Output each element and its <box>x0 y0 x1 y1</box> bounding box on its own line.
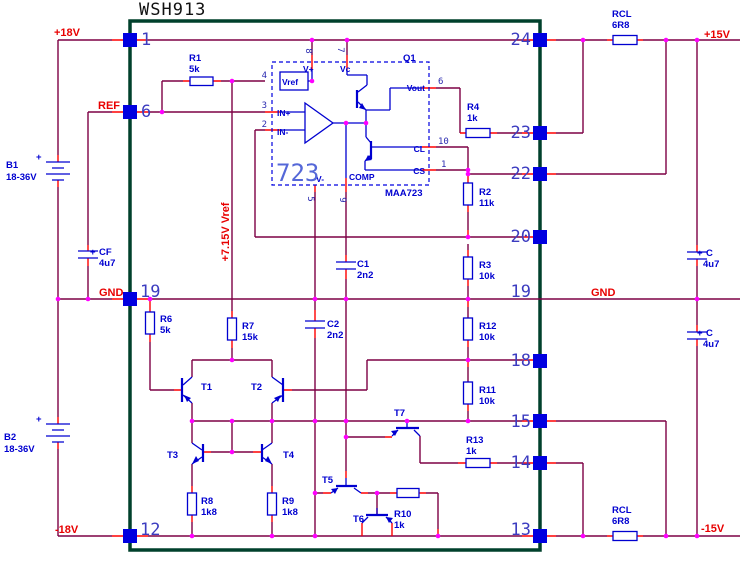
comp-label: COMP <box>349 172 375 182</box>
pin-number-15: 15 <box>511 412 531 432</box>
schematic-page: WSH913 Vref V+ Vc IN+ IN- V- COMP Vout C… <box>0 0 747 567</box>
r12-value: 10k <box>479 332 496 343</box>
rcl-top-name: RCL <box>612 9 632 20</box>
cs-label: CS <box>413 166 425 176</box>
pin-pad-15 <box>533 414 547 428</box>
resistor-r4 <box>466 129 490 138</box>
resistor-r9 <box>268 493 277 515</box>
pin-pad-22 <box>533 167 547 181</box>
inminus-label: IN- <box>277 127 289 137</box>
opamp-triangle <box>305 103 333 143</box>
r3-name: R3 <box>479 260 491 271</box>
ic-pin7: 7 <box>335 47 345 52</box>
ic-pin9: 9 <box>337 197 347 202</box>
resistor-r2 <box>464 183 473 205</box>
resistors: R1 5k R4 1k R2 11k R3 10k R12 10k R11 10… <box>146 9 638 541</box>
cl-label: CL <box>414 144 425 154</box>
pin-pad-24 <box>533 33 547 47</box>
cf-value: 4u7 <box>99 258 115 269</box>
t2-label: T2 <box>251 382 262 393</box>
c2-value: 2n2 <box>327 330 343 341</box>
r8-name: R8 <box>201 496 213 507</box>
b2-name: B2 <box>4 432 16 443</box>
pin-pad-12 <box>123 529 137 543</box>
capacitors-batteries: C1 2n2 C2 2n2 + CF 4u7 + C 4u7 + C 4u7 +… <box>4 152 719 455</box>
c-bottom-plus: + <box>697 328 703 339</box>
ic-pin5: 5 <box>305 196 315 201</box>
ic-pin8: 8 <box>303 48 313 53</box>
resistor-r7 <box>228 318 237 340</box>
cf-name: CF <box>99 247 112 258</box>
net-minus18v: -18V <box>55 524 79 536</box>
transistor-bars <box>182 378 419 515</box>
net-vref-rail: +7.15V Vref <box>220 202 232 261</box>
t3-label: T3 <box>167 450 178 461</box>
r10-name: R10 <box>394 509 411 520</box>
r11-value: 10k <box>479 396 496 407</box>
net-plus15v: +15V <box>704 29 731 41</box>
ic-pin4: 4 <box>262 71 267 81</box>
net-minus15v: -15V <box>701 523 725 535</box>
ic-pin3: 3 <box>262 101 267 111</box>
ic-transistor-bars <box>357 90 371 159</box>
b1-value: 18-36V <box>6 172 37 183</box>
t4-label: T4 <box>283 450 295 461</box>
pin-pad-13 <box>533 529 547 543</box>
pin-pad-18 <box>533 354 547 368</box>
b1-name: B1 <box>6 160 19 171</box>
r10-value: 1k <box>394 520 405 531</box>
resistor-rcl-bottom <box>613 532 637 541</box>
r1-value: 5k <box>189 64 200 75</box>
pin-pad-14 <box>533 456 547 470</box>
r7-name: R7 <box>242 321 254 332</box>
r13-value: 1k <box>466 446 477 457</box>
resistor-r12 <box>464 318 473 340</box>
pin-number-20: 20 <box>511 227 531 247</box>
c1-name: C1 <box>357 259 370 270</box>
pin-number-1: 1 <box>141 30 151 50</box>
net-gnd-right: GND <box>591 287 616 299</box>
t7-label: T7 <box>394 408 405 419</box>
t1-label: T1 <box>201 382 213 393</box>
pin-number-13: 13 <box>511 520 531 540</box>
c1-value: 2n2 <box>357 270 373 281</box>
pin-pad-20 <box>533 230 547 244</box>
cf-plus: + <box>90 247 96 258</box>
pin-number-22: 22 <box>511 164 531 184</box>
resistor-r3 <box>464 257 473 279</box>
resistor-r11 <box>464 382 473 404</box>
pin-number-23: 23 <box>511 123 531 143</box>
pin-number-6: 6 <box>141 102 151 122</box>
inplus-label: IN+ <box>277 108 291 118</box>
ic-pin1: 1 <box>441 160 446 170</box>
b2-value: 18-36V <box>4 444 35 455</box>
pin-number-24: 24 <box>511 30 531 50</box>
rcl-bottom-value: 6R8 <box>612 516 629 527</box>
ic-pin2: 2 <box>262 120 267 130</box>
r6-name: R6 <box>160 314 172 325</box>
rcl-top-value: 6R8 <box>612 20 629 31</box>
resistor-r10 <box>397 489 419 498</box>
resistor-r6 <box>146 312 155 334</box>
r1-name: R1 <box>189 53 202 64</box>
vc-label: Vc <box>340 64 351 74</box>
pin-number-18: 18 <box>511 351 531 371</box>
resistor-r8 <box>188 493 197 515</box>
r3-value: 10k <box>479 271 496 282</box>
c2-name: C2 <box>327 319 339 330</box>
net-ref: REF <box>98 100 120 112</box>
resistor-rcl-top <box>613 36 637 45</box>
resistor-r13 <box>466 459 490 468</box>
r2-name: R2 <box>479 187 491 198</box>
module-title: WSH913 <box>139 0 206 20</box>
r2-value: 11k <box>479 198 495 209</box>
vplus-label: V+ <box>303 64 314 74</box>
net-gnd-left: GND <box>99 287 124 299</box>
vref-block-label: Vref <box>282 77 298 87</box>
pin-pad-1 <box>123 33 137 47</box>
pin-pad-19-left <box>123 292 137 306</box>
t5-label: T5 <box>322 475 334 486</box>
pin-pad-6 <box>123 105 137 119</box>
ic-pin10: 10 <box>438 137 449 147</box>
r9-name: R9 <box>282 496 294 507</box>
schematic-canvas: WSH913 Vref V+ Vc IN+ IN- V- COMP Vout C… <box>0 0 747 567</box>
pin-pad-23 <box>533 126 547 140</box>
r11-name: R11 <box>479 385 497 396</box>
t6-label: T6 <box>353 514 364 525</box>
module-pins: 1 6 19 12 24 23 22 20 19 18 15 14 13 <box>123 30 547 543</box>
ic-part-number: MAA723 <box>385 188 423 199</box>
vout-label: Vout <box>407 83 425 93</box>
b2-plus: + <box>36 414 42 425</box>
r6-value: 5k <box>160 325 171 336</box>
r7-value: 15k <box>242 332 259 343</box>
net-plus18v: +18V <box>54 27 81 39</box>
rcl-bottom-name: RCL <box>612 505 632 516</box>
c-top-value: 4u7 <box>703 259 719 270</box>
c-top-name: C <box>706 248 713 259</box>
pin-number-19-right: 19 <box>511 282 531 302</box>
pin-number-14: 14 <box>511 453 531 473</box>
r4-name: R4 <box>467 102 480 113</box>
c-top-plus: + <box>697 248 703 259</box>
r13-name: R13 <box>466 435 483 446</box>
b1-plus: + <box>36 152 42 163</box>
r8-value: 1k8 <box>201 507 217 518</box>
r12-name: R12 <box>479 321 496 332</box>
c-bottom-name: C <box>706 328 713 339</box>
ic-pin6: 6 <box>438 77 443 87</box>
r4-value: 1k <box>467 113 478 124</box>
ic-723: Vref V+ Vc IN+ IN- V- COMP Vout CL CS 4 … <box>262 47 449 202</box>
pin-number-12: 12 <box>140 520 160 540</box>
r9-value: 1k8 <box>282 507 298 518</box>
transistor-legs <box>183 377 420 523</box>
ic-723-big-label: 723 <box>276 159 319 187</box>
q1-label: Q1 <box>403 53 416 64</box>
c-bottom-value: 4u7 <box>703 339 719 350</box>
resistor-r1 <box>190 77 213 86</box>
